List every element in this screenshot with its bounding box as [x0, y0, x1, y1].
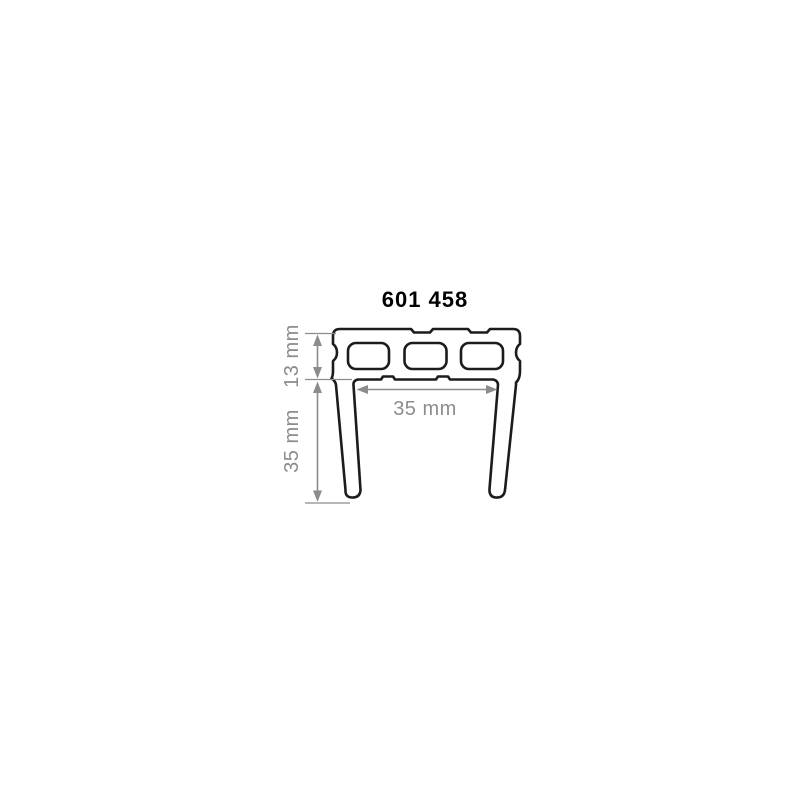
drawing-canvas: 601 458 13 mm 35 mm: [0, 0, 800, 800]
dimension-label-13mm: 13 mm: [281, 324, 303, 388]
dimension-leg-length: 35 mm: [281, 382, 322, 503]
technical-drawing: 601 458 13 mm 35 mm: [0, 0, 800, 800]
profile-slot-right: [461, 343, 503, 369]
dimension-label-35mm-leg: 35 mm: [281, 409, 303, 473]
dimension-label-35mm-width: 35 mm: [393, 398, 457, 420]
arrowhead-left-icon: [357, 385, 369, 394]
arrowhead-up-icon: [313, 335, 322, 347]
profile-slot-left: [348, 343, 389, 369]
part-number-title: 601 458: [382, 287, 469, 312]
dimension-inner-width: 35 mm: [357, 385, 498, 420]
arrowhead-up-icon: [313, 382, 322, 394]
profile-slot-middle: [405, 343, 447, 369]
arrowhead-right-icon: [486, 385, 498, 394]
arrowhead-down-icon: [313, 491, 322, 503]
arrowhead-down-icon: [313, 367, 322, 379]
